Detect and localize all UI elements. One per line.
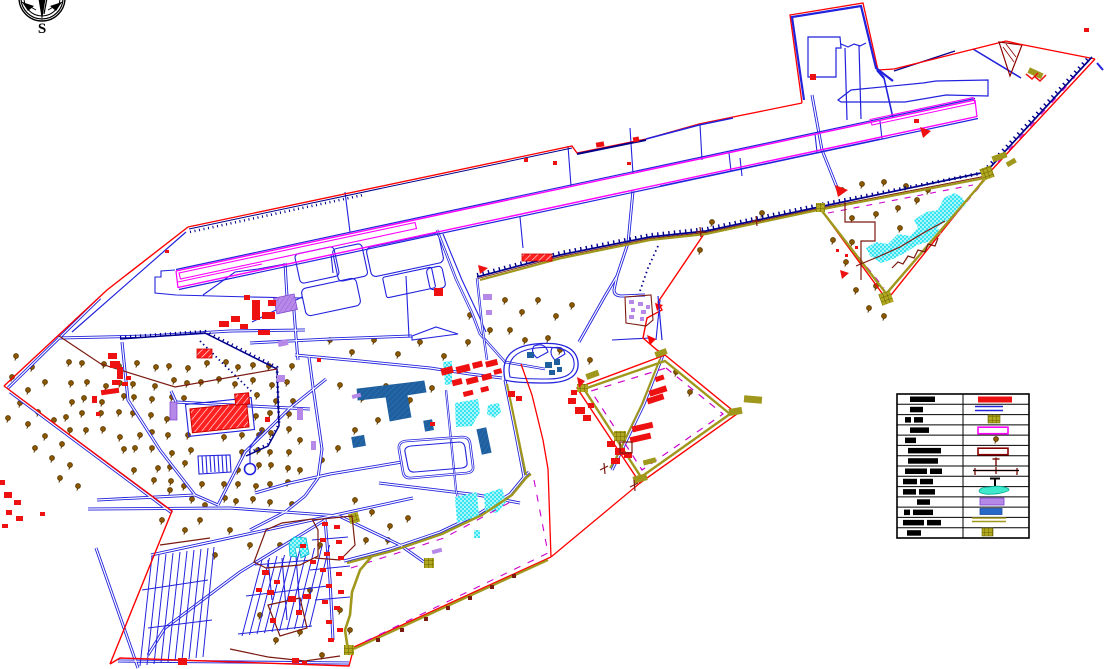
svg-text:S: S (38, 21, 46, 37)
